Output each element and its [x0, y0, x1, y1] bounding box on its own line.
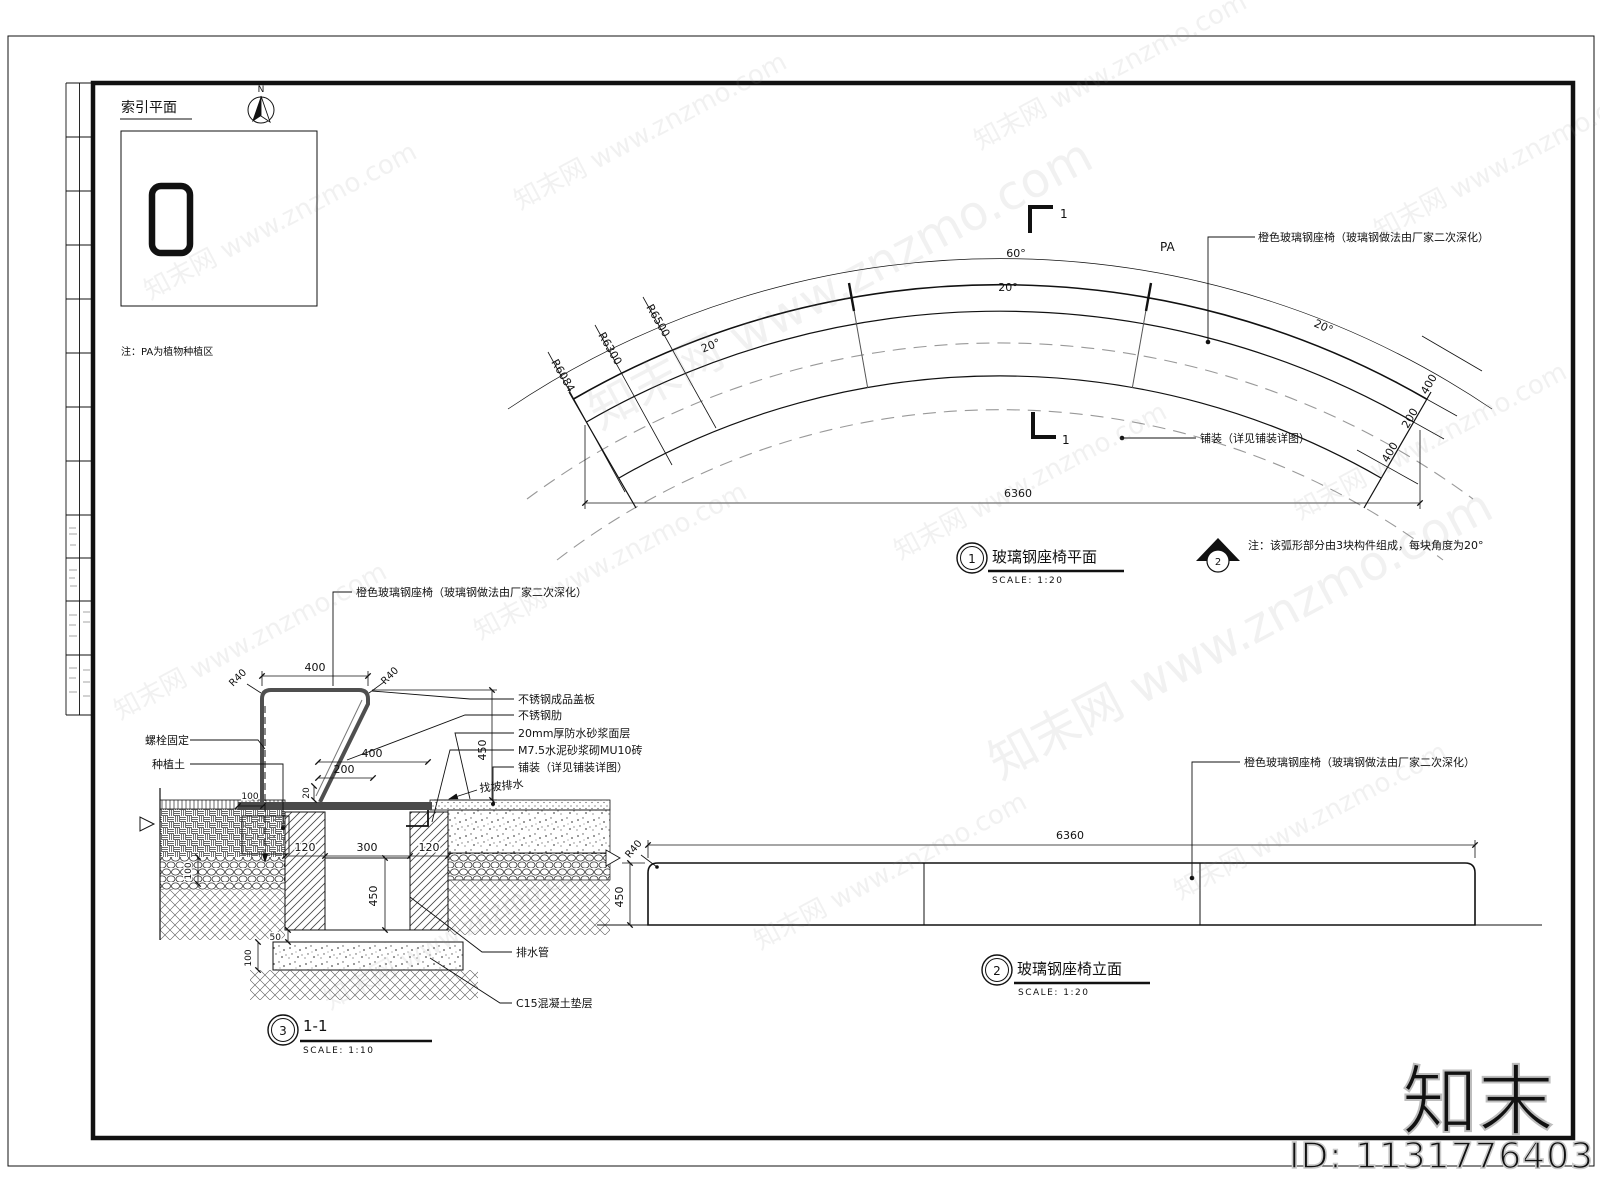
section-scale-text: SCALE: 1:10 — [303, 1046, 374, 1056]
bolt-callout: 螺栓固定 — [145, 733, 265, 749]
planting-area-label: PA — [1160, 240, 1175, 254]
brick-wall-right — [410, 812, 448, 930]
svg-text:排水管: 排水管 — [516, 945, 549, 959]
angle-right-label: 20° — [1312, 317, 1335, 337]
dim-wall-right-120: 120 — [419, 841, 440, 854]
svg-text:铺装（详见铺装详图）: 铺装（详见铺装详图） — [518, 760, 628, 774]
svg-text:找坡排水: 找坡排水 — [479, 776, 524, 795]
break-mark-icon — [606, 850, 620, 866]
radius-label-r6300: R6300 — [595, 330, 624, 367]
svg-text:螺栓固定: 螺栓固定 — [145, 733, 189, 747]
elevation-marker-number: 2 — [1215, 557, 1221, 568]
elevation-title: 2 玻璃钢座椅立面 SCALE: 1:20 — [982, 955, 1150, 998]
watermark-text: 知末网 www.znzmo.com — [1369, 77, 1600, 246]
dim-r40-right: R40 — [379, 665, 401, 687]
elevation-radius-label: R40 — [624, 838, 659, 868]
section-title: 3 1-1 SCALE: 1:10 — [268, 1015, 432, 1056]
dim-top-400: 400 — [305, 661, 326, 674]
index-plan-note: 注：PA为植物种植区 — [121, 345, 213, 358]
cad-sheet: 索引平面 N 注：PA为植物种植区 1 1 60° 20° 20° 20° PA… — [0, 0, 1600, 1200]
drawing-canvas: 索引平面 N 注：PA为植物种植区 1 1 60° 20° 20° 20° PA… — [0, 0, 1600, 1200]
svg-text:种植土: 种植土 — [152, 757, 185, 771]
watermark-text: 知末网 www.znzmo.com — [509, 47, 792, 216]
section-bubble-number: 3 — [279, 1024, 287, 1038]
mortar-layer — [430, 800, 610, 810]
watermark-text: 知末网 www.znzmo.com — [969, 0, 1252, 156]
cover-plate-callout: 不锈钢成品盖板 — [372, 691, 595, 706]
site-branding: 知末 ID: 1131776403 — [1289, 1057, 1594, 1177]
elevation-view: 6360 450 R40 橙色玻璃钢座椅（玻璃钢做法由厂家二次深化） 2 玻璃钢… — [597, 755, 1542, 998]
dim-base-100: 100 — [241, 792, 258, 802]
svg-text:橙色玻璃钢座椅（玻璃钢做法由厂家二次深化）: 橙色玻璃钢座椅（玻璃钢做法由厂家二次深化） — [1258, 230, 1489, 244]
end-dim-200: 200 — [1399, 406, 1421, 431]
concrete-layer-right — [448, 810, 610, 853]
svg-text:20mm厚防水砂浆面层: 20mm厚防水砂浆面层 — [518, 726, 630, 740]
elevation-length-dimension: 6360 — [648, 829, 1475, 858]
bench-elevation-outline — [648, 863, 1475, 925]
plan-bubble-number: 1 — [968, 552, 976, 566]
elevation-bubble-number: 2 — [993, 964, 1001, 978]
brick-wall-left — [285, 812, 325, 930]
watermark-text: 知末网 www.znzmo.com — [109, 557, 392, 726]
svg-text:6360: 6360 — [1056, 829, 1084, 842]
dim-depth-450: 450 — [367, 886, 380, 907]
watermark-text: 知末网 www.znzmo.com — [469, 477, 752, 646]
plan-title-text: 玻璃钢座椅平面 — [992, 548, 1097, 566]
svg-text:M7.5水泥砂浆砌MU10砖: M7.5水泥砂浆砌MU10砖 — [518, 743, 643, 757]
index-plan-title: 索引平面 — [121, 99, 177, 116]
svg-text:450: 450 — [613, 887, 626, 908]
dim-ledge-50: 50 — [270, 933, 282, 943]
watermark-text-large: 知末网 www.znzmo.com — [579, 127, 1101, 440]
section-title-text: 1-1 — [303, 1017, 328, 1035]
seat-base-plate — [238, 802, 432, 810]
plan-title: 1 玻璃钢座椅平面 SCALE: 1:20 — [957, 543, 1124, 586]
grade-marker-icon — [140, 817, 154, 831]
end-dim-400a: 400 — [1418, 372, 1440, 397]
dim-soil-100: 100 — [184, 862, 194, 879]
section-cut-mark-bottom: 1 — [1033, 412, 1070, 447]
elevation-marker: 2 — [1196, 538, 1240, 572]
svg-text:不锈钢成品盖板: 不锈钢成品盖板 — [518, 692, 595, 706]
elevation-title-text: 玻璃钢座椅立面 — [1017, 960, 1122, 978]
dim-20: 20 — [302, 787, 312, 799]
elevation-height-dimension: 450 — [613, 863, 645, 925]
watermark-text: 知末网 www.znzmo.com — [889, 397, 1172, 566]
dim-wall-left-120: 120 — [295, 841, 316, 854]
angle-mid-label: 20° — [998, 281, 1018, 294]
svg-text:C15混凝土垫层: C15混凝土垫层 — [516, 996, 593, 1010]
radius-label-r6500: R6500 — [643, 302, 672, 339]
image-id-label: ID: 1131776403 — [1289, 1136, 1594, 1177]
seat-profile — [262, 690, 368, 802]
plan-scale-text: SCALE: 1:20 — [992, 576, 1063, 586]
dim-footing-100: 100 — [244, 949, 254, 966]
dim-mid-400: 400 — [362, 747, 383, 760]
dim-mid-200: 200 — [334, 763, 355, 776]
dim-seat-450: 450 — [476, 740, 489, 761]
svg-text:R40: R40 — [624, 838, 645, 860]
slope-drain-callout: 找坡排水 — [449, 776, 524, 799]
angle-total-label: 60° — [1006, 247, 1026, 260]
bench-base-arc — [619, 376, 1381, 478]
plan-seat-callout: 橙色玻璃钢座椅（玻璃钢做法由厂家二次深化） — [1206, 230, 1489, 344]
watermark-text: 知末网 www.znzmo.com — [139, 137, 422, 306]
radius-label-r6084: R6084 — [548, 357, 577, 394]
gravel-layer-left — [160, 857, 285, 890]
subgrade-left — [160, 890, 285, 940]
index-bench-shape — [152, 186, 190, 253]
north-label: N — [258, 85, 265, 95]
svg-text:1: 1 — [1060, 207, 1068, 221]
north-arrow-icon: N — [248, 85, 274, 123]
dim-cavity-300: 300 — [357, 841, 378, 854]
anchor-block — [242, 816, 289, 854]
zhimo-logo: 知末 — [1402, 1057, 1554, 1146]
title-block-strip — [66, 83, 93, 715]
svg-text:不锈钢肋: 不锈钢肋 — [518, 708, 562, 722]
svg-text:铺装（详见铺装详图）: 铺装（详见铺装详图） — [1200, 431, 1310, 445]
dim-r40-left: R40 — [227, 667, 249, 689]
elevation-scale-text: SCALE: 1:20 — [1018, 988, 1089, 998]
